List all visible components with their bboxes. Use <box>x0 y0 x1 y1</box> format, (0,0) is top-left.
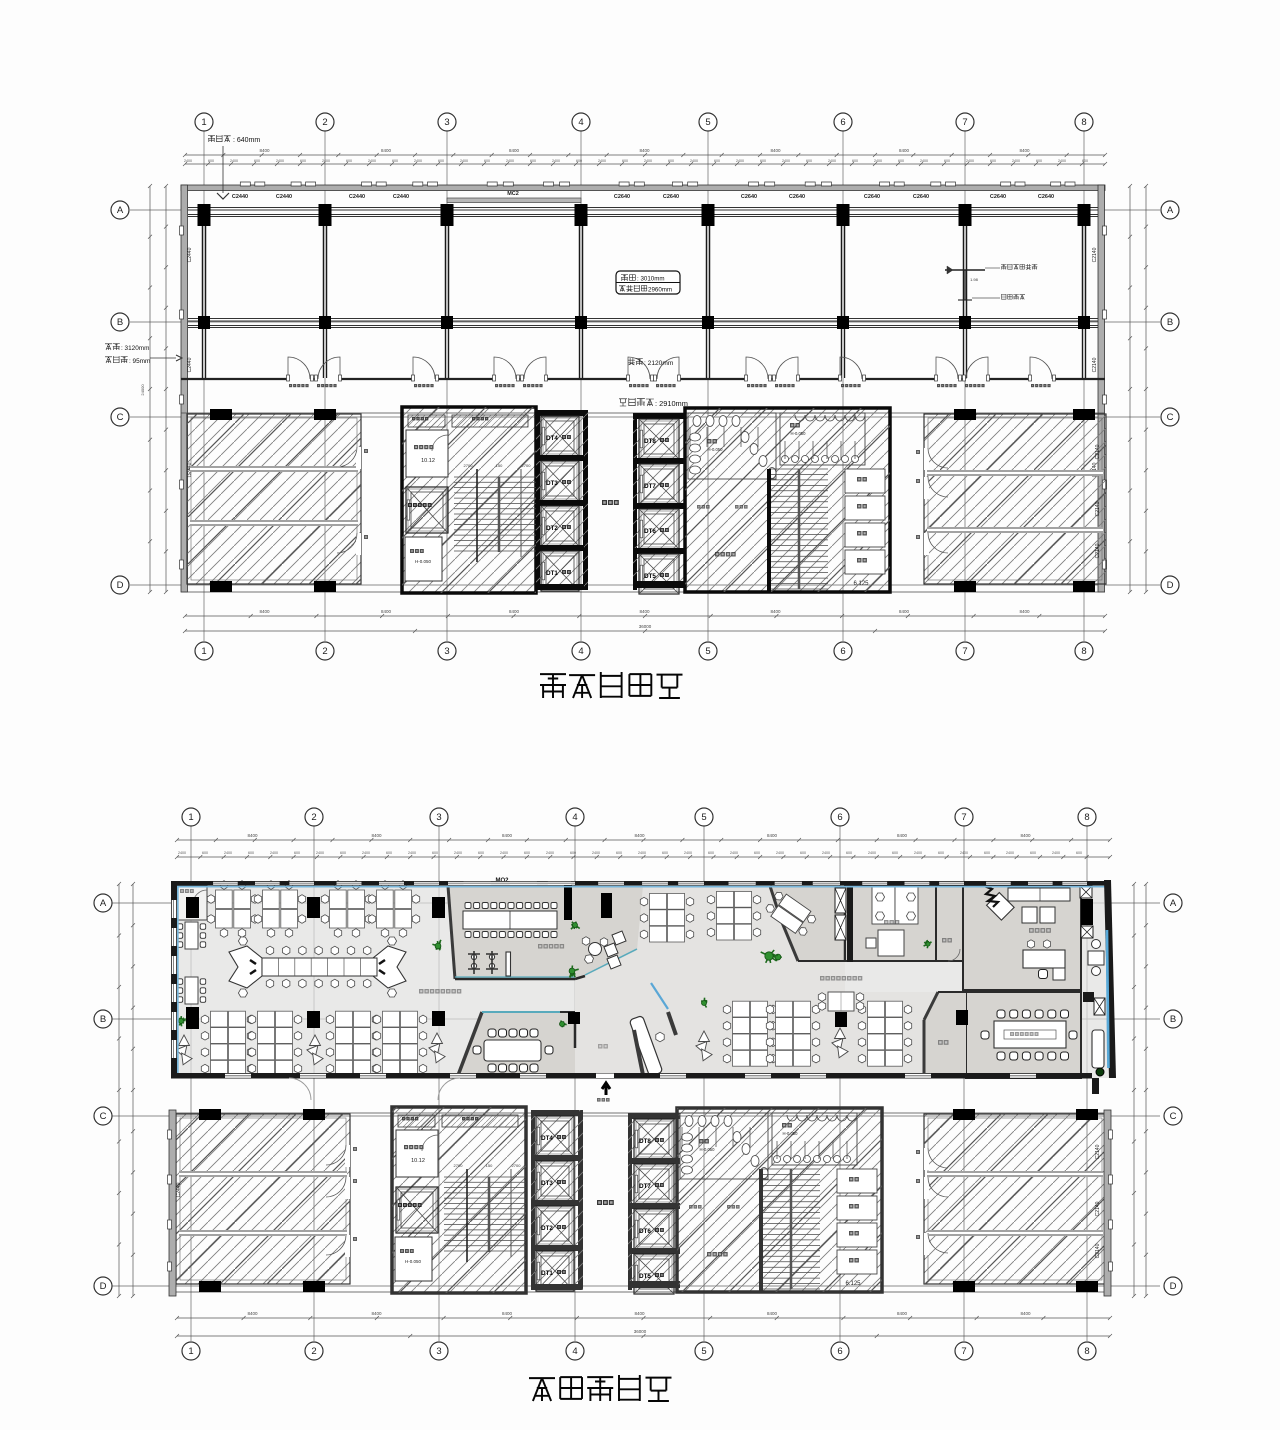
svg-text:: 3010mm: : 3010mm <box>637 276 665 283</box>
svg-text:8400: 8400 <box>897 1311 908 1316</box>
svg-text:8400: 8400 <box>371 833 382 838</box>
svg-text:8400: 8400 <box>259 148 270 153</box>
svg-text:2400: 2400 <box>966 159 974 163</box>
svg-text:2400: 2400 <box>598 159 606 163</box>
svg-text:600: 600 <box>616 851 622 855</box>
svg-text:6: 6 <box>837 812 842 823</box>
svg-text:C2440: C2440 <box>349 194 365 200</box>
svg-text:8400: 8400 <box>639 148 650 153</box>
svg-text:8: 8 <box>1084 812 1089 823</box>
svg-text:600: 600 <box>852 159 858 163</box>
svg-text:3: 3 <box>436 1346 441 1357</box>
svg-text:600: 600 <box>1082 159 1088 163</box>
svg-text:4: 4 <box>572 1346 577 1357</box>
svg-text:2400: 2400 <box>868 851 876 855</box>
svg-text:8400: 8400 <box>1020 833 1031 838</box>
svg-text:2400: 2400 <box>276 159 284 163</box>
svg-text:600: 600 <box>202 851 208 855</box>
svg-text:2400: 2400 <box>828 159 836 163</box>
svg-text:8400: 8400 <box>1019 609 1030 614</box>
svg-text:8400: 8400 <box>634 833 645 838</box>
svg-text:2400: 2400 <box>184 159 192 163</box>
svg-text:600: 600 <box>990 159 996 163</box>
svg-text:DT2: DT2 <box>541 1225 553 1232</box>
svg-text:600: 600 <box>714 159 720 163</box>
svg-text:8400: 8400 <box>381 148 392 153</box>
svg-text:3: 3 <box>436 812 441 823</box>
svg-text:8400: 8400 <box>767 833 778 838</box>
svg-text:7: 7 <box>961 1346 966 1357</box>
svg-text:10.12: 10.12 <box>421 458 435 464</box>
svg-text:2400: 2400 <box>690 159 698 163</box>
svg-text:2400: 2400 <box>506 159 514 163</box>
svg-text:36000: 36000 <box>634 1329 647 1334</box>
svg-text:C: C <box>100 1111 107 1122</box>
svg-text:600: 600 <box>524 851 530 855</box>
svg-text:B: B <box>1167 317 1173 328</box>
svg-text:DT3: DT3 <box>546 480 558 487</box>
svg-text:5: 5 <box>705 117 710 128</box>
svg-text:600: 600 <box>668 159 674 163</box>
svg-text:2400: 2400 <box>408 851 416 855</box>
svg-text:A: A <box>1167 205 1174 216</box>
svg-text:2: 2 <box>322 117 327 128</box>
svg-text:600: 600 <box>760 159 766 163</box>
svg-text:B: B <box>1170 1014 1176 1025</box>
svg-text:150: 150 <box>486 1163 493 1168</box>
svg-text:5: 5 <box>701 812 706 823</box>
svg-text:1: 1 <box>188 812 193 823</box>
svg-text:2400: 2400 <box>316 851 324 855</box>
svg-text:DT5: DT5 <box>644 573 656 580</box>
svg-text:600: 600 <box>294 851 300 855</box>
svg-text:36000: 36000 <box>639 624 652 629</box>
svg-text:DT4: DT4 <box>541 1135 553 1142</box>
svg-text:2400: 2400 <box>730 851 738 855</box>
svg-text:2400: 2400 <box>500 851 508 855</box>
svg-text:600: 600 <box>254 159 260 163</box>
svg-text:H-0.050: H-0.050 <box>405 1259 422 1264</box>
svg-text:8400: 8400 <box>509 148 520 153</box>
svg-text:4: 4 <box>572 812 577 823</box>
svg-text:C: C <box>1167 412 1174 423</box>
svg-text:8400: 8400 <box>509 609 520 614</box>
svg-text:H-0.050: H-0.050 <box>700 1147 716 1152</box>
svg-text:600: 600 <box>892 851 898 855</box>
svg-text:2400: 2400 <box>644 159 652 163</box>
svg-text:H-0.050: H-0.050 <box>415 559 432 564</box>
svg-text:A: A <box>117 205 124 216</box>
svg-text:8: 8 <box>1081 117 1086 128</box>
svg-text:2400: 2400 <box>1058 159 1066 163</box>
svg-text:2400: 2400 <box>782 159 790 163</box>
svg-text:2700: 2700 <box>464 463 474 468</box>
svg-text:DT8: DT8 <box>639 1138 651 1145</box>
svg-text:2400: 2400 <box>224 851 232 855</box>
svg-text:A: A <box>100 898 107 909</box>
svg-text:A: A <box>1170 898 1177 909</box>
svg-text:C2140: C2140 <box>1095 501 1101 516</box>
svg-text:C2440: C2440 <box>187 247 193 262</box>
svg-text:600: 600 <box>432 851 438 855</box>
svg-text:7: 7 <box>962 117 967 128</box>
svg-text:8400: 8400 <box>502 833 513 838</box>
svg-text:C2640: C2640 <box>864 194 880 200</box>
svg-text:600: 600 <box>392 159 398 163</box>
svg-text:2400: 2400 <box>638 851 646 855</box>
svg-text:: 2120mm: : 2120mm <box>644 360 674 367</box>
svg-text:2400: 2400 <box>362 851 370 855</box>
svg-text:2400: 2400 <box>1006 851 1014 855</box>
svg-text:2400: 2400 <box>914 851 922 855</box>
svg-text:6.125: 6.125 <box>845 1281 861 1287</box>
svg-text:8400: 8400 <box>770 148 781 153</box>
svg-text:MC2: MC2 <box>507 191 519 197</box>
svg-text:2400: 2400 <box>1012 159 1020 163</box>
svg-text:600: 600 <box>1030 851 1036 855</box>
svg-text:: 3120mm: : 3120mm <box>121 345 149 352</box>
svg-text:C2440: C2440 <box>393 194 409 200</box>
svg-text:600: 600 <box>576 159 582 163</box>
svg-text:3: 3 <box>444 117 449 128</box>
svg-text:600: 600 <box>340 851 346 855</box>
svg-text:2400: 2400 <box>822 851 830 855</box>
svg-text:600: 600 <box>248 851 254 855</box>
svg-text:3: 3 <box>444 646 449 657</box>
svg-text:2700: 2700 <box>512 1163 522 1168</box>
svg-text:2400: 2400 <box>960 851 968 855</box>
svg-text:2400: 2400 <box>684 851 692 855</box>
svg-text:C2140: C2140 <box>1092 247 1098 262</box>
svg-text:600: 600 <box>898 159 904 163</box>
svg-text:2400: 2400 <box>230 159 238 163</box>
svg-text:600: 600 <box>208 159 214 163</box>
svg-text:DT5: DT5 <box>639 1273 651 1280</box>
svg-text:2400: 2400 <box>414 159 422 163</box>
svg-text:D: D <box>1167 580 1174 591</box>
svg-text:1.98: 1.98 <box>970 277 979 282</box>
svg-text:2400: 2400 <box>552 159 560 163</box>
svg-text:DT1: DT1 <box>541 1270 553 1277</box>
svg-text:H-0.050: H-0.050 <box>791 431 807 436</box>
svg-text:B: B <box>100 1014 106 1025</box>
svg-text:600: 600 <box>846 851 852 855</box>
svg-text:10.12: 10.12 <box>411 1158 425 1164</box>
svg-text:C2140: C2140 <box>1095 1201 1101 1216</box>
svg-text:600: 600 <box>570 851 576 855</box>
svg-text:C2640: C2640 <box>990 194 1006 200</box>
svg-text:8400: 8400 <box>247 833 258 838</box>
svg-text:600: 600 <box>438 159 444 163</box>
svg-text:600: 600 <box>662 851 668 855</box>
svg-text:8400: 8400 <box>371 1311 382 1316</box>
svg-text:8400: 8400 <box>897 833 908 838</box>
svg-text:600: 600 <box>622 159 628 163</box>
svg-text:8400: 8400 <box>1019 148 1030 153</box>
svg-text:8400: 8400 <box>381 609 392 614</box>
svg-text:600: 600 <box>346 159 352 163</box>
svg-text:C2640: C2640 <box>663 194 679 200</box>
svg-text:8: 8 <box>1081 646 1086 657</box>
svg-text:C2640: C2640 <box>789 194 805 200</box>
svg-text:1: 1 <box>188 1346 193 1357</box>
svg-text:8400: 8400 <box>770 609 781 614</box>
svg-text:600: 600 <box>806 159 812 163</box>
svg-text:24000: 24000 <box>140 384 145 396</box>
svg-text:C2140: C2140 <box>1095 543 1101 558</box>
svg-text:2700: 2700 <box>522 463 532 468</box>
svg-text:2: 2 <box>311 812 316 823</box>
svg-text:2400: 2400 <box>874 159 882 163</box>
svg-text:2400: 2400 <box>1052 851 1060 855</box>
svg-text:DT4: DT4 <box>546 435 558 442</box>
svg-text:C2440: C2440 <box>232 194 248 200</box>
svg-text:600: 600 <box>708 851 714 855</box>
svg-text:H-0.050: H-0.050 <box>708 447 724 452</box>
svg-text:C2640: C2640 <box>741 194 757 200</box>
svg-text:D: D <box>100 1281 107 1292</box>
svg-text:C2140: C2140 <box>1092 357 1098 372</box>
svg-text:C: C <box>1170 1111 1177 1122</box>
svg-text:C2640: C2640 <box>1038 194 1054 200</box>
svg-text:600: 600 <box>754 851 760 855</box>
svg-text:C2140: C2140 <box>1095 444 1101 459</box>
svg-text:600: 600 <box>484 159 490 163</box>
svg-text:600: 600 <box>1076 851 1082 855</box>
svg-text:8: 8 <box>1084 1346 1089 1357</box>
svg-text:8400: 8400 <box>1020 1311 1031 1316</box>
svg-text:DT1: DT1 <box>546 570 558 577</box>
svg-text:C2640: C2640 <box>913 194 929 200</box>
svg-text:DT3: DT3 <box>541 1180 553 1187</box>
svg-text:2400: 2400 <box>460 159 468 163</box>
svg-text:8400: 8400 <box>502 1311 513 1316</box>
svg-text:600: 600 <box>984 851 990 855</box>
svg-text:C2140: C2140 <box>1095 1144 1101 1159</box>
svg-text:D: D <box>1170 1281 1177 1292</box>
svg-text:7: 7 <box>961 812 966 823</box>
svg-text:4: 4 <box>578 646 583 657</box>
svg-text:DT6: DT6 <box>639 1228 651 1235</box>
svg-text:5: 5 <box>705 646 710 657</box>
svg-text:C2440: C2440 <box>187 357 193 372</box>
svg-text:: 2910mm: : 2910mm <box>655 399 688 408</box>
svg-text:2700: 2700 <box>454 1163 464 1168</box>
svg-text:600: 600 <box>1036 159 1042 163</box>
svg-text:C: C <box>117 412 124 423</box>
svg-text:600: 600 <box>530 159 536 163</box>
svg-text:: 95mm: : 95mm <box>129 358 150 365</box>
svg-text:7: 7 <box>962 646 967 657</box>
svg-text:C2440: C2440 <box>276 194 292 200</box>
svg-text:C2440: C2440 <box>176 1182 182 1197</box>
svg-text:2400: 2400 <box>776 851 784 855</box>
svg-text:C2640: C2640 <box>614 194 630 200</box>
svg-text:DT2: DT2 <box>546 525 558 532</box>
svg-text:600: 600 <box>944 159 950 163</box>
svg-text:6: 6 <box>837 1346 842 1357</box>
svg-text:DT7: DT7 <box>639 1183 651 1190</box>
svg-text:D: D <box>117 580 124 591</box>
svg-text:2960mm: 2960mm <box>648 287 672 294</box>
svg-text:DT7: DT7 <box>644 483 656 490</box>
svg-text:2400: 2400 <box>736 159 744 163</box>
svg-text:DT6: DT6 <box>644 528 656 535</box>
svg-text:2400: 2400 <box>920 159 928 163</box>
svg-text:H-0.050: H-0.050 <box>783 1131 799 1136</box>
svg-text:2400: 2400 <box>322 159 330 163</box>
svg-text:: 640mm: : 640mm <box>233 137 260 144</box>
svg-text:600: 600 <box>800 851 806 855</box>
svg-text:8400: 8400 <box>767 1311 778 1316</box>
svg-text:2400: 2400 <box>454 851 462 855</box>
svg-text:6: 6 <box>840 646 845 657</box>
svg-text:C2140: C2140 <box>1095 1243 1101 1258</box>
svg-text:2400: 2400 <box>270 851 278 855</box>
svg-text:DT8: DT8 <box>644 438 656 445</box>
svg-text:150: 150 <box>496 463 503 468</box>
svg-text:8400: 8400 <box>634 1311 645 1316</box>
svg-text:2400: 2400 <box>592 851 600 855</box>
svg-text:2400: 2400 <box>546 851 554 855</box>
svg-text:600: 600 <box>300 159 306 163</box>
svg-text:8400: 8400 <box>639 609 650 614</box>
svg-text:600: 600 <box>938 851 944 855</box>
svg-text:8400: 8400 <box>899 148 910 153</box>
svg-text:8400: 8400 <box>247 1311 258 1316</box>
svg-text:2400: 2400 <box>178 851 186 855</box>
svg-text:4: 4 <box>578 117 583 128</box>
svg-text:600: 600 <box>386 851 392 855</box>
svg-text:6: 6 <box>840 117 845 128</box>
svg-text:8400: 8400 <box>899 609 910 614</box>
svg-text:8400: 8400 <box>259 609 270 614</box>
svg-text:6.125: 6.125 <box>853 581 869 587</box>
svg-text:1: 1 <box>201 646 206 657</box>
svg-text:2: 2 <box>311 1346 316 1357</box>
svg-text:2: 2 <box>322 646 327 657</box>
svg-text:1: 1 <box>201 117 206 128</box>
svg-text:5: 5 <box>701 1346 706 1357</box>
svg-text:600: 600 <box>478 851 484 855</box>
svg-text:B: B <box>117 317 123 328</box>
svg-text:2400: 2400 <box>368 159 376 163</box>
